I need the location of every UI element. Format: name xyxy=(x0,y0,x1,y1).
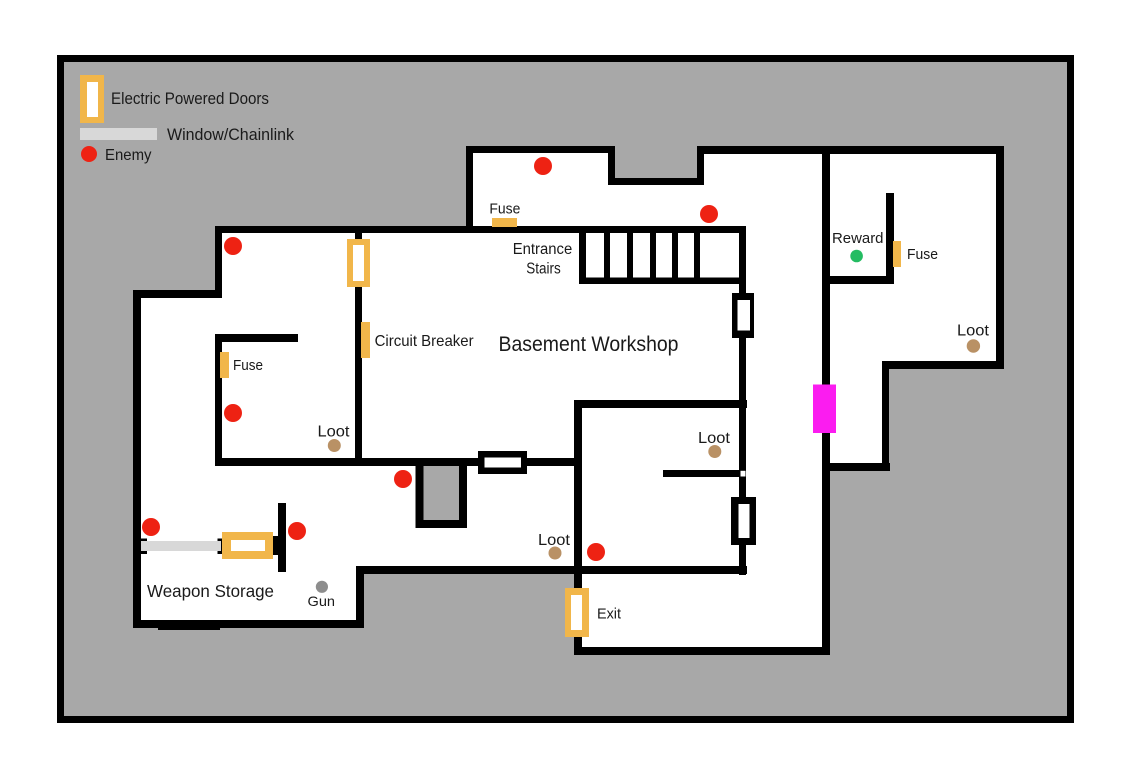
svg-text:Fuse: Fuse xyxy=(489,201,520,218)
svg-text:Loot: Loot xyxy=(318,424,351,441)
svg-text:Electric Powered Doors: Electric Powered Doors xyxy=(111,89,269,108)
svg-text:Basement Workshop: Basement Workshop xyxy=(499,333,679,356)
svg-text:Entrance: Entrance xyxy=(513,241,573,258)
svg-text:Enemy: Enemy xyxy=(105,147,152,164)
svg-text:Stairs: Stairs xyxy=(526,261,561,278)
svg-text:Window/Chainlink: Window/Chainlink xyxy=(167,125,294,144)
svg-text:Exit: Exit xyxy=(597,606,622,623)
svg-text:Gun: Gun xyxy=(308,593,336,609)
svg-text:Loot: Loot xyxy=(698,430,731,447)
svg-text:Weapon Storage: Weapon Storage xyxy=(147,581,274,601)
svg-text:Fuse: Fuse xyxy=(233,357,263,374)
svg-text:Loot: Loot xyxy=(538,532,571,549)
svg-text:Circuit Breaker: Circuit Breaker xyxy=(375,333,475,350)
svg-text:Loot: Loot xyxy=(957,323,990,340)
svg-text:Fuse: Fuse xyxy=(907,246,938,263)
svg-text:Reward: Reward xyxy=(832,231,884,247)
